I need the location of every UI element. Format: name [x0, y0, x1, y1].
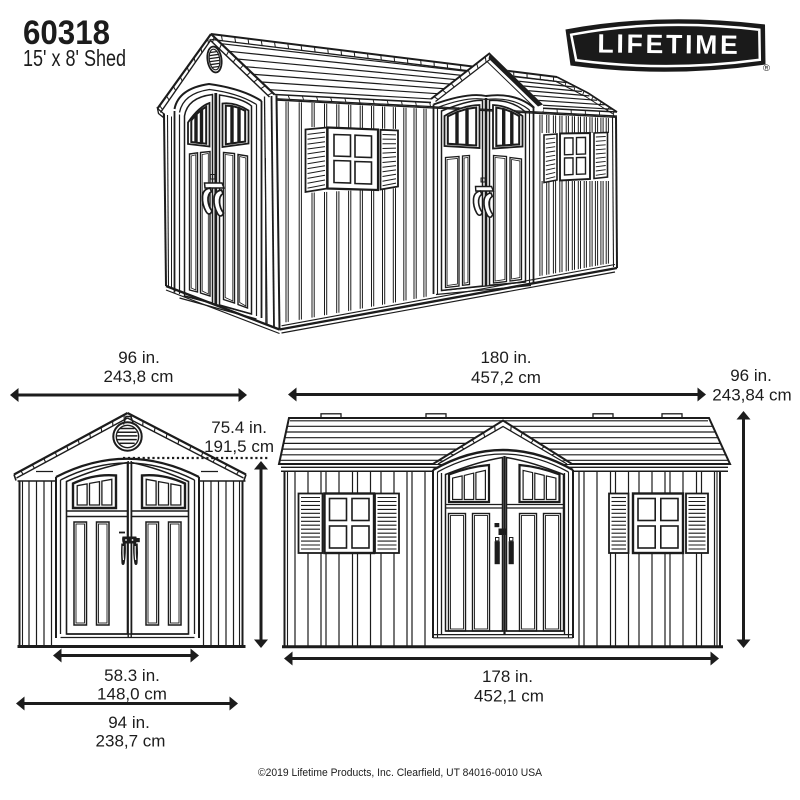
svg-text:180 in.: 180 in. — [480, 348, 531, 367]
svg-text:457,2 cm: 457,2 cm — [471, 368, 541, 387]
svg-text:96 in.: 96 in. — [118, 348, 160, 367]
svg-text:58.3 in.: 58.3 in. — [104, 666, 160, 685]
svg-text:®: ® — [763, 63, 770, 74]
svg-text:238,7 cm: 238,7 cm — [96, 732, 166, 751]
svg-text:452,1 cm: 452,1 cm — [474, 687, 544, 706]
svg-text:94 in.: 94 in. — [108, 713, 150, 732]
svg-text:243,8 cm: 243,8 cm — [104, 367, 174, 386]
svg-text:191,5 cm: 191,5 cm — [204, 437, 274, 456]
svg-text:LIFETIME: LIFETIME — [597, 28, 740, 59]
svg-text:178 in.: 178 in. — [482, 667, 533, 686]
svg-text:©2019 Lifetime Products, Inc.: ©2019 Lifetime Products, Inc. Clearfield… — [258, 767, 543, 779]
svg-text:243,84 cm: 243,84 cm — [712, 386, 791, 405]
svg-text:148,0 cm: 148,0 cm — [97, 685, 167, 704]
svg-text:96 in.: 96 in. — [730, 366, 772, 385]
svg-text:15' x 8' Shed: 15' x 8' Shed — [23, 45, 126, 71]
svg-text:75.4 in.: 75.4 in. — [211, 418, 267, 437]
